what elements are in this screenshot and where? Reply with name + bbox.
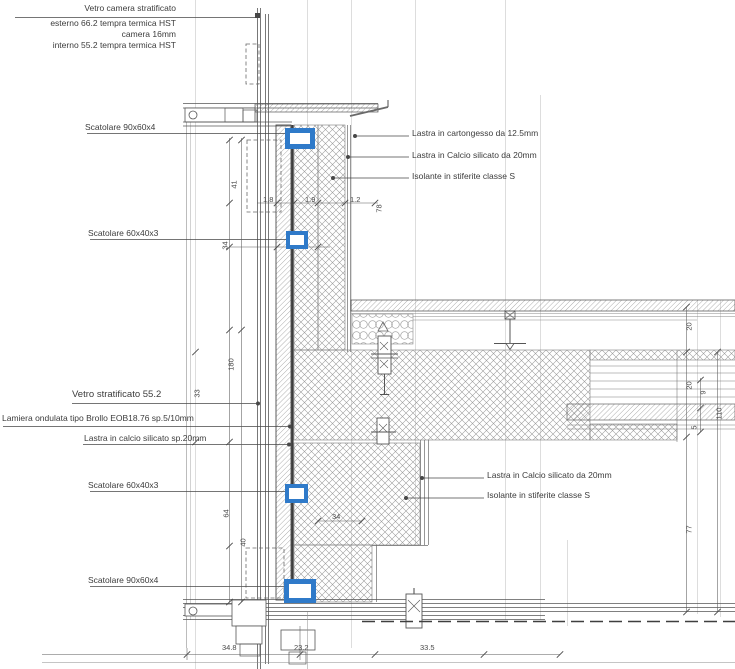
transom-top xyxy=(183,100,388,126)
dim-right-20-upper: 20 xyxy=(685,314,694,340)
dim-left-40: 40 xyxy=(239,530,248,556)
glass-spec-line-exterior: esterno 66.2 tempra termica HST xyxy=(0,19,176,28)
highlight-marker-scatolare-60x40x3-bottom[interactable] xyxy=(285,484,308,503)
highlight-marker-scatolare-60x40x3-top[interactable] xyxy=(286,231,308,249)
glass-spec-title: Vetro camera stratificato xyxy=(0,4,176,13)
callout-cartongesso-125: Lastra in cartongesso da 12.5mm xyxy=(412,129,538,138)
callout-calcio-20-top: Lastra in Calcio silicato da 20mm xyxy=(412,151,537,160)
dim-left-33: 33 xyxy=(193,381,202,407)
dim-right-110: 110 xyxy=(715,401,724,427)
callout-scatolare-60x40x3-bottom: Scatolare 60x40x3 xyxy=(88,481,158,490)
dim-wall-1-8: 1.8 xyxy=(263,195,273,204)
cad-drawing-canvas: Vetro camera stratificato esterno 66.2 t… xyxy=(0,0,735,669)
floor-layers xyxy=(567,366,735,429)
dim-left-64: 64 xyxy=(222,501,231,527)
callout-lamiera-ondulata: Lamiera ondulata tipo Brollo EOB18.76 sp… xyxy=(2,414,194,423)
dim-right-20-mid: 20 xyxy=(685,373,694,399)
floor-slab xyxy=(351,300,735,314)
dim-left-34: 34 xyxy=(221,233,230,259)
dim-bottom-33-5: 33.5 xyxy=(420,643,435,652)
dim-right-9: 9 xyxy=(699,380,708,406)
dim-right-77: 77 xyxy=(685,517,694,543)
glass-spec-line-interior: interno 55.2 tempra termica HST xyxy=(0,41,176,50)
grid-lines xyxy=(196,0,721,669)
dim-wall-78: 78 xyxy=(375,196,384,222)
dim-wall-34: 34 xyxy=(332,512,340,521)
highlight-marker-scatolare-90x60x4-top[interactable] xyxy=(285,128,315,149)
drawing-linework xyxy=(0,0,735,669)
dim-right-5: 5 xyxy=(690,415,699,441)
insulation-band xyxy=(294,350,735,442)
dim-left-41: 41 xyxy=(230,172,239,198)
callout-scatolare-90x60x4-top: Scatolare 90x60x4 xyxy=(85,123,155,132)
dim-bottom-23-2: 23.2 xyxy=(294,643,309,652)
callout-calcio-20-bottom: Lastra in Calcio silicato da 20mm xyxy=(487,471,612,480)
dim-wall-1-9: 1.9 xyxy=(305,195,315,204)
dim-bottom-34-8: 34.8 xyxy=(222,643,237,652)
callout-isolante-bottom: Isolante in stiferite classe S xyxy=(487,491,590,500)
highlight-marker-scatolare-90x60x4-bottom[interactable] xyxy=(284,579,316,603)
glass-spec-line-cavity: camera 16mm xyxy=(0,30,176,39)
dim-left-180: 180 xyxy=(227,352,236,378)
callout-lastra-calcio-sp20: Lastra in calcio silicato sp.20mm xyxy=(84,434,206,443)
callout-scatolare-60x40x3-top: Scatolare 60x40x3 xyxy=(88,229,158,238)
callout-vetro-stratificato: Vetro stratificato 55.2 xyxy=(72,390,161,400)
callout-isolante-top: Isolante in stiferite classe S xyxy=(412,172,515,181)
dim-wall-1-2: 1.2 xyxy=(350,195,360,204)
callout-scatolare-90x60x4-bottom: Scatolare 90x60x4 xyxy=(88,576,158,585)
